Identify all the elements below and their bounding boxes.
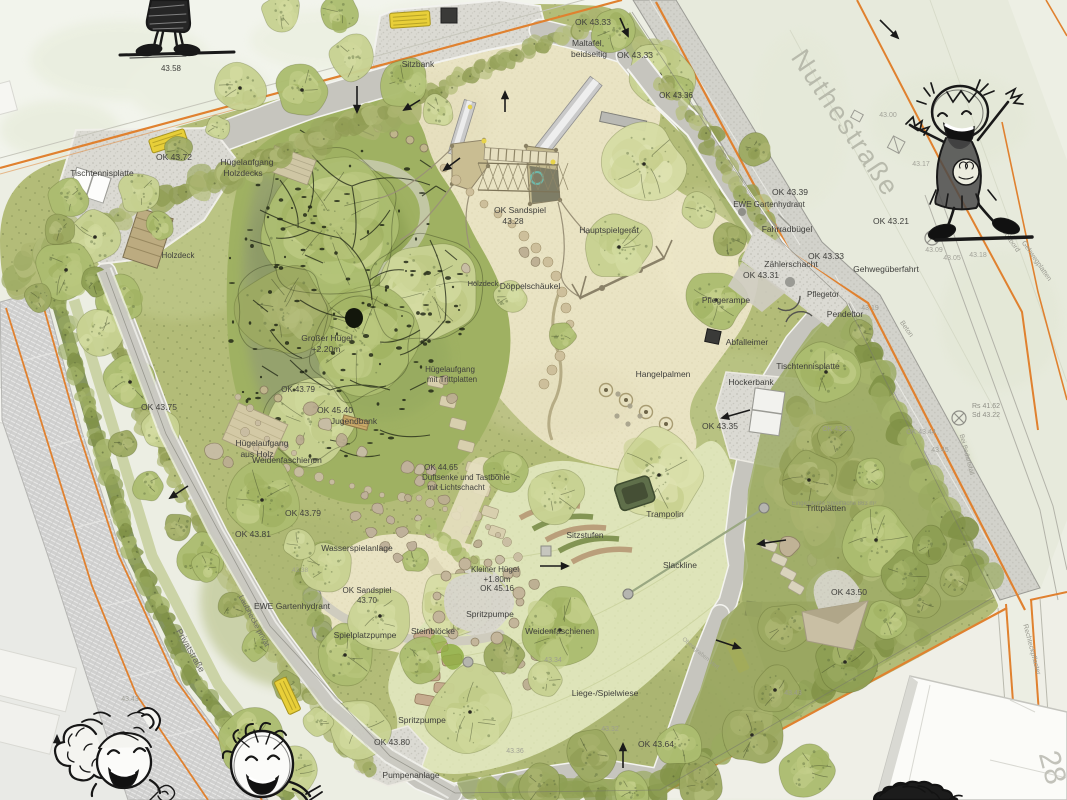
svg-text:OK 43.79: OK 43.79 [285, 508, 321, 518]
svg-text:Großer Hügel: Großer Hügel [301, 333, 353, 343]
svg-text:43.00: 43.00 [879, 112, 897, 119]
svg-text:43.45: 43.45 [931, 447, 949, 454]
svg-text:Hölzdeck: Hölzdeck [468, 279, 499, 288]
svg-text:Wasserspielanlage: Wasserspielanlage [321, 543, 393, 553]
svg-text:Weidenfaschienen: Weidenfaschienen [525, 626, 595, 636]
svg-text:OK 44.65: OK 44.65 [424, 463, 458, 472]
svg-text:Pumpenanlage: Pumpenanlage [382, 770, 439, 780]
svg-text:OK Sandspiel: OK Sandspiel [494, 205, 546, 215]
svg-text:OK 43.81: OK 43.81 [235, 529, 271, 539]
svg-text:EWE Gartenhydrant: EWE Gartenhydrant [254, 601, 331, 611]
svg-text:OK 43.36: OK 43.36 [659, 91, 693, 100]
svg-text:Sitzstufen: Sitzstufen [566, 530, 604, 540]
svg-text:Pendeltor: Pendeltor [827, 309, 864, 319]
svg-text:OK 43.33: OK 43.33 [575, 17, 611, 27]
svg-text:Hangelpalmen: Hangelpalmen [636, 369, 691, 379]
svg-text:OK 43.21: OK 43.21 [873, 216, 909, 226]
svg-text:EWE Gartenhydrant: EWE Gartenhydrant [733, 200, 805, 209]
svg-text:Eingezäunte Spielfläche 863 m²: Eingezäunte Spielfläche 863 m² [792, 501, 877, 507]
svg-text:OK 43.75: OK 43.75 [141, 402, 177, 412]
svg-text:Steinblöcke: Steinblöcke [411, 626, 455, 636]
svg-text:43.34: 43.34 [544, 657, 562, 664]
svg-text:mit Trittplatten: mit Trittplatten [427, 375, 477, 384]
svg-text:Trampolin: Trampolin [646, 509, 684, 519]
svg-text:Spritzpumpe: Spritzpumpe [466, 609, 514, 619]
svg-text:Hauptspielgerät: Hauptspielgerät [579, 225, 639, 235]
svg-text:Kleiner Hügel: Kleiner Hügel [471, 565, 519, 574]
svg-text:Duftsenke und Tastböhle: Duftsenke und Tastböhle [422, 473, 510, 482]
svg-text:OK 43.72: OK 43.72 [156, 152, 192, 162]
svg-text:43.17: 43.17 [912, 161, 930, 168]
svg-text:OK Sandspiel: OK Sandspiel [343, 586, 392, 595]
svg-text:43.36: 43.36 [506, 748, 524, 755]
svg-text:43.05: 43.05 [943, 255, 961, 262]
svg-text:Tischtennisplatte: Tischtennisplatte [776, 361, 840, 371]
svg-text:Sd 43.22: Sd 43.22 [972, 412, 1000, 419]
svg-text:OK 43.35: OK 43.35 [702, 421, 738, 431]
svg-text:OK 43.39: OK 43.39 [772, 187, 808, 197]
svg-text:43.28: 43.28 [502, 216, 524, 226]
svg-text:OK 45.40: OK 45.40 [317, 405, 353, 415]
svg-text:Hockerbank: Hockerbank [728, 377, 774, 387]
svg-text:Hügelaufgang: Hügelaufgang [236, 438, 289, 448]
svg-text:Fahrradbügel: Fahrradbügel [762, 224, 813, 234]
svg-text:Spielplatzpumpe: Spielplatzpumpe [334, 630, 397, 640]
svg-text:Pflegerampe: Pflegerampe [702, 295, 750, 305]
svg-text:43.19: 43.19 [861, 305, 879, 312]
svg-text:Hügelaufgang: Hügelaufgang [425, 365, 475, 374]
svg-text:Weidenfaschienen: Weidenfaschienen [252, 455, 322, 465]
svg-text:OK 45.16: OK 45.16 [480, 584, 514, 593]
svg-text:Sitzbank: Sitzbank [402, 59, 435, 69]
svg-text:OK 43.33: OK 43.33 [822, 426, 852, 433]
svg-text:OK 43.80: OK 43.80 [374, 737, 410, 747]
svg-text:43.38: 43.38 [292, 567, 309, 574]
svg-text:Pflegetor: Pflegetor [807, 290, 839, 299]
svg-text:Slackline: Slackline [663, 560, 697, 570]
svg-text:Jugendbank: Jugendbank [331, 416, 378, 426]
svg-text:Spritzpumpe: Spritzpumpe [398, 715, 446, 725]
svg-text:43.43: 43.43 [784, 690, 802, 697]
svg-text:OK 43.79: OK 43.79 [281, 385, 315, 394]
svg-text:43.70: 43.70 [357, 596, 378, 605]
svg-text:Maltafel,: Maltafel, [572, 38, 604, 48]
svg-text:beidseitig: beidseitig [571, 49, 607, 59]
svg-text:mit Lichtschacht: mit Lichtschacht [427, 483, 485, 492]
svg-text:OK 43.31: OK 43.31 [743, 270, 779, 280]
svg-text:OK 43.64: OK 43.64 [638, 739, 674, 749]
svg-text:Tischtennisplatte: Tischtennisplatte [70, 168, 134, 178]
svg-text:Liege-/Spielwiese: Liege-/Spielwiese [572, 688, 639, 698]
svg-text:Gehwegüberfahrt: Gehwegüberfahrt [853, 264, 919, 274]
svg-text:Döppelschäukel: Döppelschäukel [500, 281, 561, 291]
svg-text:43.18: 43.18 [969, 252, 987, 259]
svg-text:43.09: 43.09 [925, 247, 943, 254]
svg-text:+1.80m: +1.80m [484, 575, 511, 584]
svg-text:Abfalleimer: Abfalleimer [726, 337, 769, 347]
svg-text:43.43: 43.43 [121, 696, 139, 703]
svg-text:43.32: 43.32 [601, 726, 619, 733]
svg-text:OK 43.44: OK 43.44 [906, 429, 936, 436]
svg-text:OK 43.33: OK 43.33 [617, 50, 653, 60]
svg-text:+2.20m: +2.20m [312, 344, 341, 354]
svg-text:OK 43.50: OK 43.50 [831, 587, 867, 597]
svg-text:Zählerschacht: Zählerschacht [764, 259, 818, 269]
svg-text:43.58: 43.58 [161, 64, 182, 73]
svg-text:Rs 41.62: Rs 41.62 [972, 403, 1000, 410]
svg-text:Holzdeck: Holzdeck [162, 251, 196, 260]
svg-text:Hügelaufgang: Hügelaufgang [221, 157, 274, 167]
svg-text:Holzdecks: Holzdecks [223, 168, 262, 178]
